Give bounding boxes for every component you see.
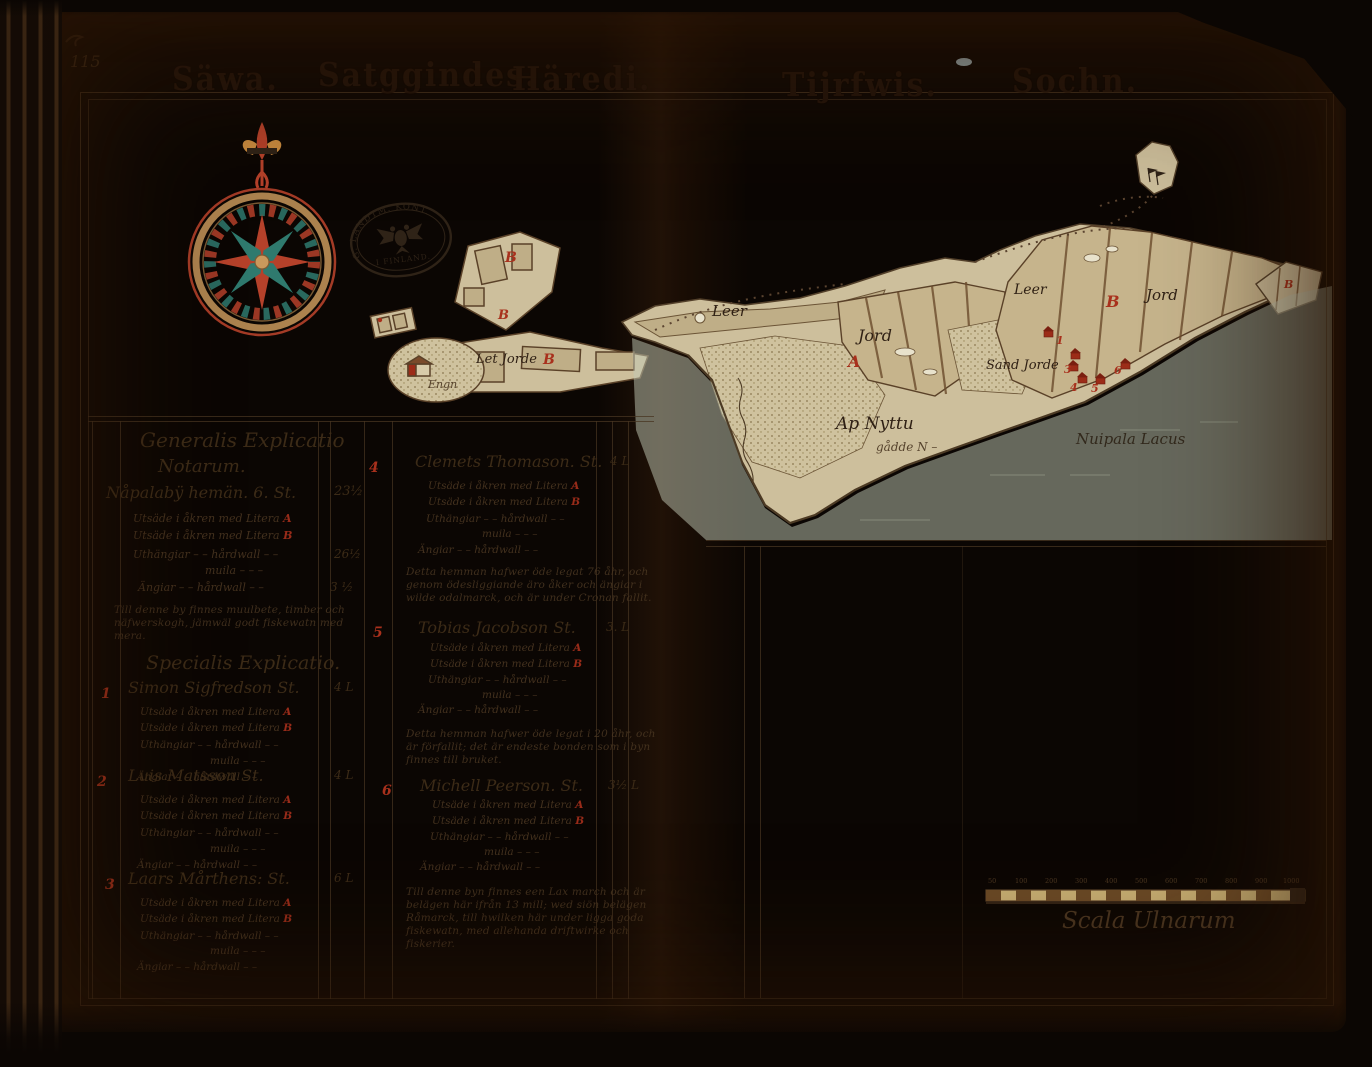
- litera-b: B: [573, 658, 582, 670]
- page-number: 115: [70, 52, 101, 71]
- entry-line-b: Utsäde i åkren med Litera B: [140, 722, 292, 734]
- entry-number: 1: [101, 686, 111, 702]
- scale-tick: 200: [1045, 877, 1057, 885]
- entry-line-muila: muila – – –: [484, 846, 539, 858]
- entry-line-ang: Ängiar – – hårdwall – –: [420, 861, 540, 873]
- map-letter-a: A: [848, 352, 860, 371]
- map-label-leer-east: Leer: [1014, 282, 1047, 298]
- house-number: 4: [1070, 381, 1078, 394]
- entry-number: 3: [105, 877, 115, 893]
- line-b-label: Utsäde i åkren med Litera: [140, 810, 280, 822]
- parcel-letter: B: [498, 308, 509, 323]
- litera-a: A: [573, 642, 581, 654]
- litera-b: B: [543, 352, 555, 368]
- entry-line-ang: Ängiar – – hårdwall – –: [418, 544, 538, 556]
- entry-name: Michell Peerson. St.: [420, 776, 583, 795]
- map-label-jord-east: Jord: [1146, 286, 1178, 304]
- scale-tick: 900: [1255, 877, 1267, 885]
- entry-number: 2: [97, 774, 107, 790]
- entry-number: 6: [382, 783, 392, 799]
- generalis-line-b: Utsäde i åkren med Litera B: [133, 529, 292, 542]
- litera-a: A: [283, 706, 291, 718]
- map-box-vrule: [744, 546, 745, 998]
- house-number: 1: [1056, 334, 1064, 347]
- generalis-line-a: Utsäde i åkren med Litera A: [133, 512, 292, 525]
- entry-line-b: Utsäde i åkren med Litera B: [428, 496, 580, 508]
- map-box-rule: [706, 540, 1326, 541]
- table-rule: [392, 421, 393, 999]
- title-word-1: Säwa.: [172, 61, 279, 99]
- entry-line-b: Utsäde i åkren med Litera B: [430, 658, 582, 670]
- background-edge-bottom: [0, 1002, 1372, 1067]
- generalis-heading-1: Generalis Explicatio: [140, 428, 345, 452]
- litera-a: A: [283, 512, 292, 525]
- map-label-leer-west: Leer: [712, 302, 747, 320]
- entry-line-a: Utsäde i åkren med Litera A: [432, 799, 583, 811]
- line-b-label: Utsäde i åkren med Litera: [430, 658, 570, 670]
- entry-line-uth: Uthängiar – – hårdwall – –: [430, 831, 569, 843]
- map-box-vrule: [760, 546, 761, 998]
- entry-name: Simon Sigfredson St.: [128, 678, 300, 697]
- generalis-note: Till denne by finnes muulbete, timber oc…: [114, 604, 354, 643]
- house-number: 6: [1114, 364, 1122, 377]
- entry-line-muila: muila – – –: [210, 843, 265, 855]
- entry-line-b: Utsäde i åkren med Litera B: [432, 815, 584, 827]
- map-box-vrule-faint: [962, 546, 963, 998]
- line-a-label: Utsäde i åkren med Litera: [430, 642, 570, 654]
- house-number: 5: [1091, 382, 1099, 395]
- parcel-letter: B: [543, 352, 555, 368]
- line-b-label: Utsäde i åkren med Litera: [140, 913, 280, 925]
- entry-line-a: Utsäde i åkren med Litera A: [140, 706, 291, 718]
- litera-b: B: [571, 496, 580, 508]
- entry-name: Laars Mårthens: St.: [128, 869, 290, 888]
- map-letter-b: B: [1106, 292, 1120, 311]
- scale-tick: 500: [1135, 877, 1147, 885]
- litera-b: B: [283, 722, 292, 734]
- entry-value: 3½ L: [608, 778, 639, 792]
- entry-name: Tobias Jacobson St.: [418, 618, 576, 637]
- litera-a: A: [283, 897, 291, 909]
- generalis-line-muila: muila – – –: [205, 564, 263, 577]
- line-a-label: Utsäde i åkren med Litera: [432, 799, 572, 811]
- map-label-sand-jorde: Sand Jorde: [986, 358, 1059, 373]
- meadow-note-1: Ap Nyttu: [836, 414, 914, 434]
- lake-label: Nuipala Lacus: [1076, 430, 1185, 448]
- scale-tick: 400: [1105, 877, 1117, 885]
- entry-name: Luis Matsson St.: [128, 766, 264, 785]
- title-word-2: Satggindes.: [318, 57, 538, 95]
- entry-line-a: Utsäde i åkren med Litera A: [430, 642, 581, 654]
- entry-name: Clemets Thomason. St.: [415, 452, 602, 471]
- table-top-rule2: [88, 421, 654, 422]
- entry-value: 4 L: [334, 768, 353, 782]
- entry-value: 6 L: [334, 871, 353, 885]
- entry-line-a: Utsäde i åkren med Litera A: [428, 480, 579, 492]
- scale-tick: 800: [1225, 877, 1237, 885]
- line-a-label: Utsäde i åkren med Litera: [133, 512, 280, 525]
- line-b-label: Utsäde i åkren med Litera: [428, 496, 568, 508]
- table-rule: [364, 421, 365, 999]
- house-number: 3: [1064, 363, 1072, 376]
- title-word-3: Häredi.: [512, 61, 652, 99]
- meadow-note-2: gådde N –: [876, 440, 937, 454]
- entry-line-uth: Uthängiar – – hårdwall – –: [140, 827, 279, 839]
- entry-line-b: Utsäde i åkren med Litera B: [140, 810, 292, 822]
- line-a-label: Utsäde i åkren med Litera: [140, 897, 280, 909]
- litera-b: B: [283, 529, 292, 542]
- title-word-5: Sochn.: [1012, 63, 1138, 101]
- book-page-edges: [0, 0, 62, 1067]
- entry-note: Detta hemman hafwer öde legat 76 åhr, oc…: [406, 566, 658, 605]
- entry-line-ang: Ängiar – – hårdwall – –: [418, 704, 538, 716]
- entry-line-uth: Uthängiar – – hårdwall – –: [140, 739, 279, 751]
- generalis-line-ang: Ängiar – – hårdwall – –: [138, 581, 264, 594]
- entry-number: 5: [373, 625, 383, 641]
- table-rule: [120, 421, 121, 999]
- entry-line-uth: Uthängiar – – hårdwall – –: [426, 513, 565, 525]
- generalis-holding: Nåpalabÿ hemän. 6. St.: [106, 483, 296, 502]
- line-a-label: Utsäde i åkren med Litera: [428, 480, 568, 492]
- line-b-label: Utsäde i åkren med Litera: [432, 815, 572, 827]
- entry-line-a: Utsäde i åkren med Litera A: [140, 794, 291, 806]
- table-rule: [92, 421, 93, 999]
- scale-tick: 700: [1195, 877, 1207, 885]
- scale-tick: 300: [1075, 877, 1087, 885]
- litera-b: B: [283, 810, 292, 822]
- entry-line-muila: muila – – –: [482, 689, 537, 701]
- entry-note: Detta hemman hafwer öde legat i 20 åhr, …: [406, 728, 658, 767]
- left-cluster-label: Let Jorde: [476, 352, 537, 367]
- entry-line-uth: Uthängiar – – hårdwall – –: [140, 930, 279, 942]
- generalis-ang-value: 3 ½: [330, 580, 353, 594]
- line-a-label: Utsäde i åkren med Litera: [140, 794, 280, 806]
- entry-line-ang: Ängiar – – hårdwall – –: [137, 961, 257, 973]
- litera-a: A: [571, 480, 579, 492]
- parcel-letter: B: [505, 250, 517, 266]
- scale-tick: 50: [988, 877, 996, 885]
- entry-value: 4 L: [610, 454, 629, 468]
- generalis-holding-value: 23½: [334, 484, 363, 499]
- litera-a: A: [575, 799, 583, 811]
- map-box-rule2: [706, 546, 1326, 547]
- map-label-jord-west: Jord: [858, 326, 892, 345]
- litera-a: A: [283, 794, 291, 806]
- entry-value: 3. L: [606, 620, 629, 634]
- entry-line-uth: Uthängiar – – hårdwall – –: [428, 674, 567, 686]
- left-cluster-caption: Engn: [428, 378, 457, 391]
- specialis-heading: Specialis Explicatio.: [146, 652, 340, 674]
- table-rule: [318, 421, 319, 999]
- paper-blemish: [956, 58, 972, 66]
- line-b-label: Utsäde i åkren med Litera: [140, 722, 280, 734]
- entry-number: 4: [369, 460, 379, 476]
- entry-value: 4 L: [334, 680, 353, 694]
- entry-line-a: Utsäde i åkren med Litera A: [140, 897, 291, 909]
- table-top-rule: [88, 416, 654, 417]
- generalis-uth-value: 26½: [334, 547, 361, 561]
- title-word-4: Tijrfwis.: [782, 67, 938, 105]
- table-rule: [330, 421, 331, 999]
- line-b-label: Utsäde i åkren med Litera: [133, 529, 280, 542]
- litera-b: B: [283, 913, 292, 925]
- scale-tick: 600: [1165, 877, 1177, 885]
- scale-label: Scala Ulnarum: [1062, 908, 1236, 934]
- map-letter-b-islet: B: [1284, 278, 1293, 291]
- litera-b: B: [498, 308, 509, 323]
- scale-tick: 100: [1015, 877, 1027, 885]
- generalis-heading-2: Notarum.: [158, 456, 246, 477]
- litera-b: B: [575, 815, 584, 827]
- litera-b: B: [505, 250, 517, 266]
- line-a-label: Utsäde i åkren med Litera: [140, 706, 280, 718]
- entry-note: Till denne byn finnes een Lax march och …: [406, 886, 658, 951]
- scale-tick: 1000: [1283, 877, 1300, 885]
- entry-line-muila: muila – – –: [210, 945, 265, 957]
- generalis-line-uth: Uthängiar – – hårdwall – –: [133, 548, 278, 561]
- background-edge-top: [0, 0, 1372, 16]
- background-edge: [1338, 0, 1372, 1067]
- entry-line-muila: muila – – –: [482, 528, 537, 540]
- entry-line-b: Utsäde i åkren med Litera B: [140, 913, 292, 925]
